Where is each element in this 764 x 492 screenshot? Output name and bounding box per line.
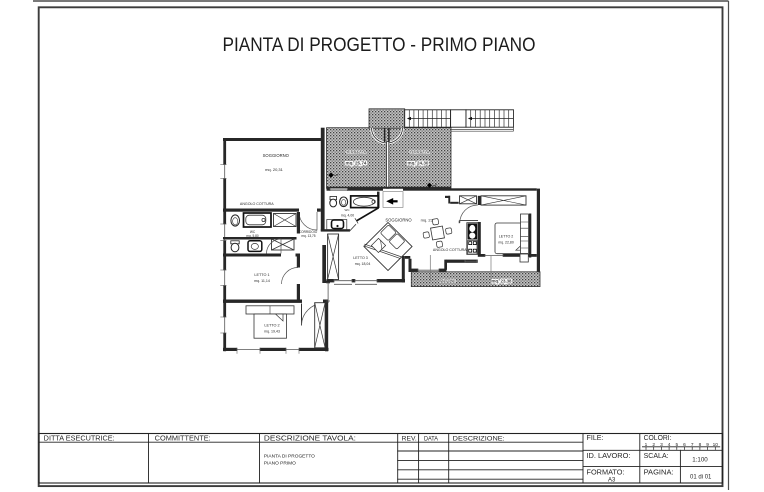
svg-text:PIANO PRIMO: PIANO PRIMO — [264, 461, 296, 467]
svg-text:PIANTA DI PROGETTO - PRIMO PIA: PIANTA DI PROGETTO - PRIMO PIANO — [223, 34, 536, 56]
svg-text:mq. 5,80: mq. 5,80 — [246, 234, 259, 238]
svg-text:01 di 01: 01 di 01 — [690, 475, 712, 481]
svg-text:TERRAZZA: TERRAZZA — [409, 151, 430, 155]
svg-text:COMMITTENTE:: COMMITTENTE: — [155, 435, 211, 442]
svg-text:COLORI:: COLORI: — [644, 435, 672, 442]
svg-text:LETTO 2: LETTO 2 — [499, 235, 514, 239]
svg-text:DESCRIZIONE TAVOLA:: DESCRIZIONE TAVOLA: — [264, 435, 356, 442]
svg-text:mq. 22,80: mq. 22,80 — [498, 240, 514, 244]
svg-text:SOGGIORNO: SOGGIORNO — [385, 217, 412, 222]
svg-text:SCALA:: SCALA: — [644, 453, 669, 460]
svg-text:mq. 18,04: mq. 18,04 — [355, 262, 371, 266]
svg-text:mq. 25,74: mq. 25,74 — [346, 161, 367, 166]
svg-text:mq. 20,31: mq. 20,31 — [265, 167, 284, 172]
svg-text:PAGINA:: PAGINA: — [644, 469, 674, 476]
svg-text:PIANTA DI PROGETTO: PIANTA DI PROGETTO — [264, 454, 315, 460]
svg-text:WC: WC — [345, 208, 351, 212]
svg-text:A3: A3 — [608, 478, 616, 484]
svg-text:DESCRIZIONE:: DESCRIZIONE: — [453, 435, 505, 442]
svg-text:LETTO 2: LETTO 2 — [264, 323, 279, 327]
svg-text:DATA: DATA — [424, 435, 439, 442]
svg-text:ANGOLO COTTURA: ANGOLO COTTURA — [433, 248, 467, 252]
svg-text:TERRAZZA: TERRAZZA — [346, 151, 367, 155]
svg-text:mq. 24,30: mq. 24,30 — [408, 161, 429, 166]
svg-text:mq. 11,14: mq. 11,14 — [254, 279, 270, 283]
svg-text:DITTA ESECUTRICE:: DITTA ESECUTRICE: — [44, 435, 115, 442]
svg-text:REV.: REV. — [402, 435, 417, 442]
svg-text:mq. 19,43: mq. 19,43 — [264, 329, 280, 333]
svg-text:ANGOLO COTTURA: ANGOLO COTTURA — [240, 202, 274, 206]
svg-text:FORMATO:: FORMATO: — [587, 469, 625, 476]
svg-text:LETTO 3: LETTO 3 — [353, 256, 368, 260]
svg-text:BALCONE: BALCONE — [439, 279, 456, 283]
svg-text:LETTO 1: LETTO 1 — [254, 273, 269, 277]
svg-text:mq. 23,38: mq. 23,38 — [491, 279, 512, 284]
svg-text:mq. 4,00: mq. 4,00 — [341, 214, 354, 218]
svg-text:mq. 13,75: mq. 13,75 — [301, 234, 315, 238]
svg-text:SOGGIORNO: SOGGIORNO — [263, 153, 290, 158]
svg-text:1:100: 1:100 — [692, 457, 708, 464]
svg-text:ID. LAVORO:: ID. LAVORO: — [587, 453, 631, 460]
svg-text:FILE:: FILE: — [587, 435, 604, 442]
